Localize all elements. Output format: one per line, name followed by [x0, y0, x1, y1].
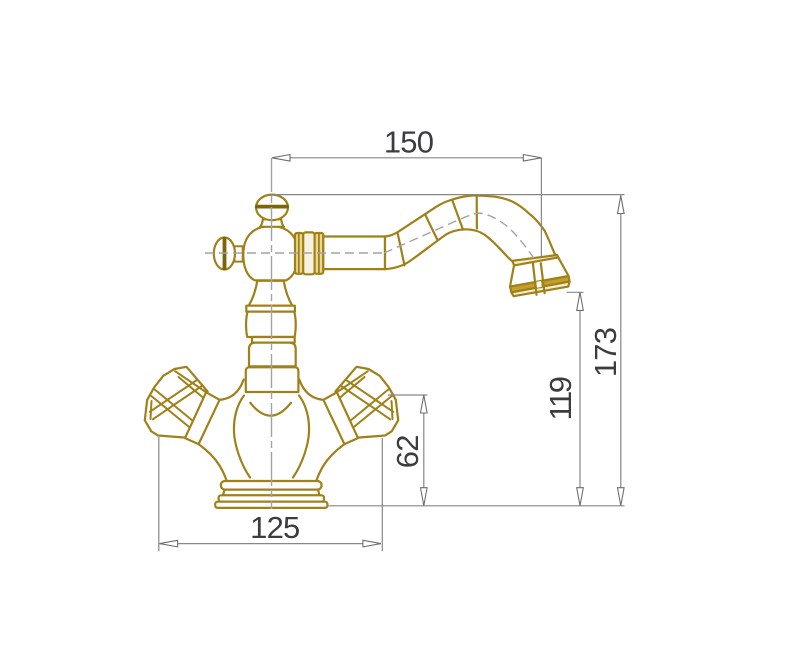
svg-text:150: 150	[384, 125, 434, 160]
svg-text:62: 62	[390, 435, 425, 468]
svg-text:125: 125	[250, 510, 299, 545]
svg-text:173: 173	[588, 328, 623, 377]
svg-text:119: 119	[543, 377, 578, 420]
